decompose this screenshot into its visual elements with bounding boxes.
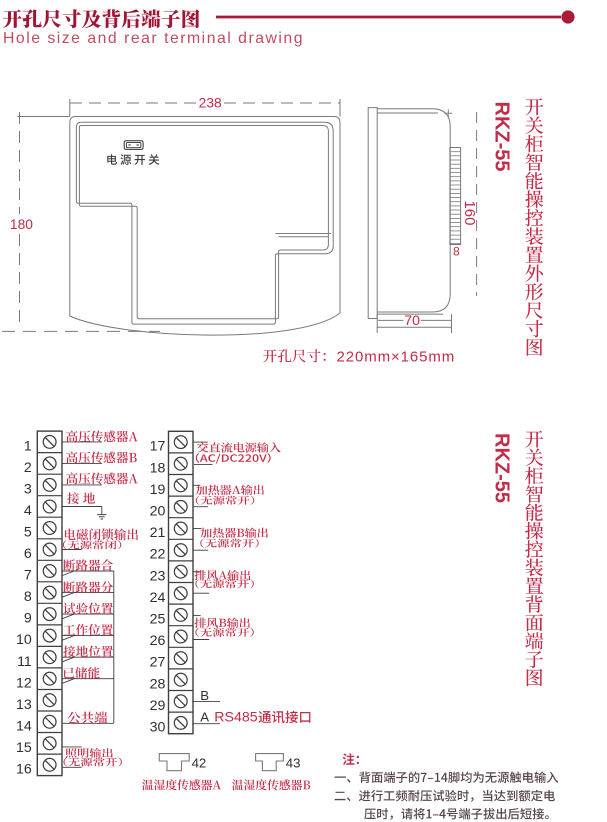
svg-text:160: 160 [461,200,478,225]
svg-text:B: B [200,688,209,703]
svg-text:3: 3 [24,482,32,498]
svg-text:12: 12 [16,675,32,691]
svg-text:20: 20 [150,504,166,520]
svg-text:15: 15 [16,740,32,756]
svg-text:21: 21 [150,525,166,541]
svg-text:8: 8 [453,245,460,259]
svg-text:220mm×165mm: 220mm×165mm [337,348,456,365]
svg-text:70: 70 [404,313,420,329]
svg-text:27: 27 [150,655,166,671]
svg-text:28: 28 [150,676,166,692]
svg-text:1: 1 [24,439,32,455]
svg-text:6: 6 [24,546,32,562]
svg-text:30: 30 [150,720,166,736]
svg-text:7: 7 [24,568,32,584]
svg-text:24: 24 [150,590,166,606]
svg-text:4: 4 [24,503,32,519]
svg-text:RKZ-55: RKZ-55 [491,433,513,503]
svg-text:43: 43 [286,755,301,770]
svg-text:10: 10 [16,632,32,648]
svg-text:42: 42 [192,755,207,770]
svg-text:17: 17 [150,439,166,455]
svg-text:16: 16 [16,761,32,777]
svg-text:14: 14 [16,718,32,734]
svg-text:5: 5 [24,525,32,541]
svg-text:22: 22 [150,547,166,563]
svg-text:RS485: RS485 [214,709,257,725]
svg-text:11: 11 [17,654,32,670]
svg-text:29: 29 [150,698,166,714]
svg-text:2: 2 [24,460,32,476]
svg-text:238: 238 [199,96,222,111]
svg-text:25: 25 [150,612,166,628]
svg-text:8: 8 [24,589,32,605]
svg-text:26: 26 [150,633,166,649]
svg-text:180: 180 [10,217,33,232]
svg-text:23: 23 [150,568,166,584]
svg-text:9: 9 [24,611,32,627]
svg-text:13: 13 [16,697,32,713]
svg-text:Hole size and rear terminal dr: Hole size and rear terminal drawing [3,30,304,47]
svg-text:18: 18 [150,460,166,476]
svg-text:A: A [200,710,209,725]
svg-text:19: 19 [150,482,166,498]
svg-text:RKZ-55: RKZ-55 [491,102,513,172]
